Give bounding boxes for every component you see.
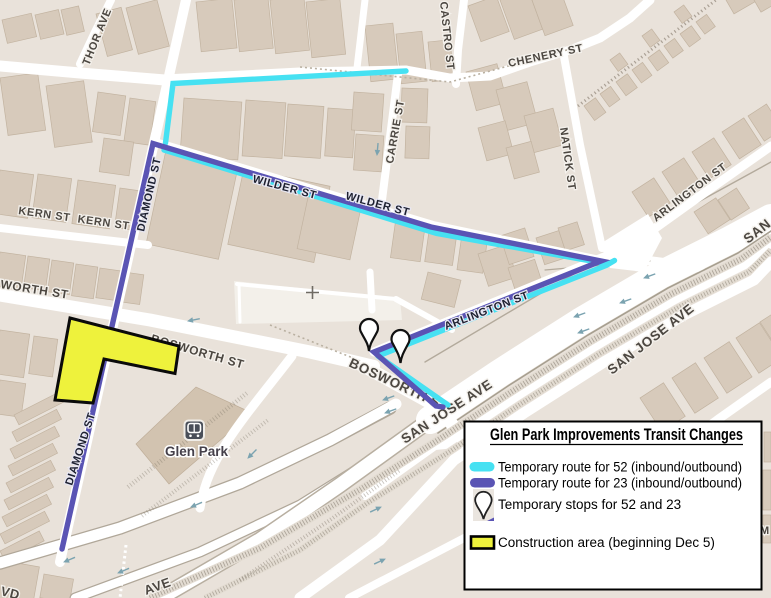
svg-text:Glen Park Improvements Transit: Glen Park Improvements Transit Changes [490,426,743,444]
svg-text:Construction area (beginning D: Construction area (beginning Dec 5) [498,535,715,550]
svg-text:Temporary stops for 52 and 23: Temporary stops for 52 and 23 [498,497,681,512]
svg-text:Temporary route for 23 (inboun: Temporary route for 23 (inbound/outbound… [498,476,742,491]
svg-text:Glen Park: Glen Park [165,444,229,459]
svg-text:Temporary route for 52 (inboun: Temporary route for 52 (inbound/outbound… [498,460,742,475]
